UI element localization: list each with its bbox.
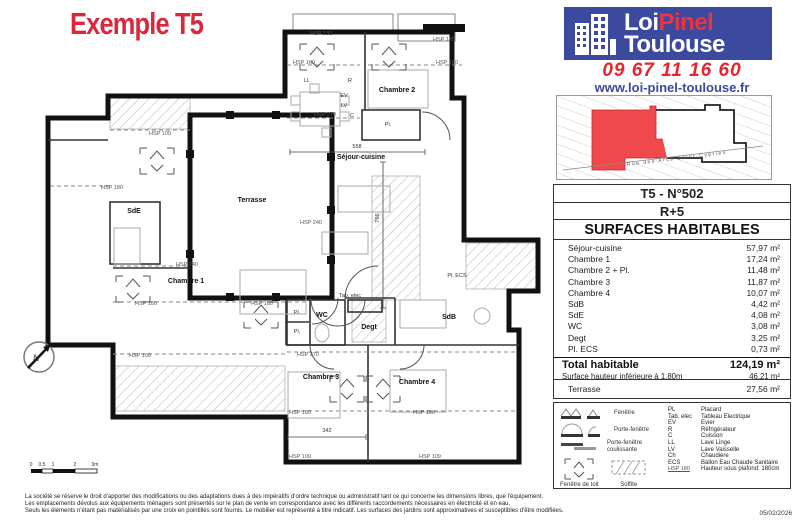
total-label: Total habitable [562, 359, 639, 371]
surface-row-value: 17,24 m² [746, 254, 780, 265]
legend-abbr: ECS [668, 460, 701, 467]
legend-roof-window-label: Fenêtre de toit [560, 482, 599, 488]
floor-plan: N TerrasseSéjour-cuisineChambre 1Chambre… [0, 0, 545, 500]
fixture-label: Pl. [294, 310, 301, 316]
room-label: Chambre 3 [303, 374, 339, 381]
surface-row: Chambre 2 + Pl.11,48 m² [554, 265, 790, 276]
terrace-value: 27,56 m² [746, 384, 780, 394]
surface-row-value: 0,73 m² [751, 344, 780, 355]
legend-abbr: LL [668, 440, 701, 447]
surface-row-value: 4,08 m² [751, 310, 780, 321]
roof-window-icon [564, 458, 594, 480]
fixture-label: R [348, 78, 352, 84]
legend-symbols: Fenêtre Porte-fenêtre Porte-fenêtre coul… [560, 407, 664, 486]
agency-logo: LoiPinel Toulouse [564, 7, 772, 60]
hsp-label: HSP 240 [176, 262, 198, 268]
legend-abbr-meaning: Ballon Eau Chaude Sanitaire [701, 460, 787, 467]
compass-north-label: N [33, 353, 40, 363]
french-door-icon [560, 423, 608, 437]
legend-abbr-meaning: Placard [701, 407, 787, 414]
room-label: Séjour-cuisine [337, 154, 385, 161]
fixture-label: Tab. elec [339, 293, 361, 299]
total-row: Total habitable 124,19 m² [554, 357, 790, 371]
surface-row-label: SdB [568, 299, 584, 310]
hsp-label: HSP 180 [135, 301, 157, 307]
terrace-walls [186, 111, 335, 301]
legend-abbr: R [668, 427, 701, 434]
surface-row-label: Chambre 2 + Pl. [568, 265, 630, 276]
room-label: Degt [361, 324, 377, 331]
surface-row-label: Pl. ECS [568, 344, 598, 355]
legend-abbreviations: PLPlacardTab. elecTableau ElectriqueEVEv… [668, 407, 787, 486]
room-label: WC [316, 312, 328, 319]
sliding-door-icon [560, 442, 601, 452]
legend-abbr-row: Tab. elecTableau Electrique [668, 414, 787, 421]
legend-abbr-row: LLLave Linge [668, 440, 787, 447]
footer-disclaimer: La société se réserve le droit d'apporte… [25, 494, 795, 515]
hsp-label: HSP 270 [314, 112, 336, 118]
room-label: Chambre 2 [379, 87, 415, 94]
surface-row-value: 3,25 m² [751, 333, 780, 344]
legend-abbr-row: LVLave Vaisselle [668, 447, 787, 454]
unit-info-box: T5 - N°502 R+5 [553, 184, 791, 221]
surface-row-value: 3,08 m² [751, 321, 780, 332]
legend-abbr-meaning: Hauteur sous plafond: 180cm [701, 466, 787, 473]
logo-word-toulouse: Toulouse [624, 34, 725, 56]
hsp-label: HSP 180 [101, 185, 123, 191]
legend-window-label: Fenêtre [614, 410, 635, 417]
scale-label: 0 [30, 462, 33, 468]
surface-row: WC3,08 m² [554, 321, 790, 332]
hsp-label: HSP 180 [289, 410, 311, 416]
legend-abbr-row: ChChaudière [668, 453, 787, 460]
legend: Fenêtre Porte-fenêtre Porte-fenêtre coul… [553, 402, 791, 489]
surface-row-value: 11,48 m² [747, 265, 780, 276]
hsp-label: HSP 109 [419, 454, 441, 460]
terrace-label: Terrasse [568, 384, 601, 394]
legend-abbr: PL [668, 407, 701, 414]
legend-abbr-row: CCuisson [668, 433, 787, 440]
scale-label: 0,5 [39, 462, 46, 468]
hsp-label: HSP 180 [413, 410, 435, 416]
legend-abbr-meaning: Chaudière [701, 453, 787, 460]
legend-abbr-row: HSP 180Hauteur sous plafond: 180cm [668, 466, 787, 473]
phone-number[interactable]: 09 67 11 16 60 [553, 60, 791, 82]
buildings-icon [574, 12, 616, 56]
compass-icon: N [24, 342, 54, 372]
fixture-label: Pl. ECS [447, 273, 467, 279]
unit-reference: T5 - N°502 [554, 185, 790, 203]
legend-abbr: Ch [668, 453, 701, 460]
hsp-label: HSP 270 [297, 352, 319, 358]
hsp-label: HSP 100 [149, 131, 171, 137]
fixture-label: Pl. [294, 329, 301, 335]
surface-row-label: Chambre 3 [568, 277, 610, 288]
legend-abbr-meaning: Réfrigérateur [701, 427, 787, 434]
hsp-label: HSP 100 [129, 353, 151, 359]
surface-row-value: 11,87 m² [747, 277, 780, 288]
surface-row: SdB4,42 m² [554, 299, 790, 310]
surface-row: Degt3,25 m² [554, 333, 790, 344]
footer-line: Les emplacements dévolus aux équipements… [25, 501, 795, 508]
hsp-label: HSP 160 [293, 60, 315, 66]
legend-abbr-row: PLPlacard [668, 407, 787, 414]
surfaces-rows: Séjour-cuisine57,97 m²Chambre 117,24 m²C… [554, 240, 790, 355]
footer-line: La société se réserve le droit d'apporte… [25, 494, 795, 501]
surface-row: Chambre 311,87 m² [554, 277, 790, 288]
site-plan: Rue des Arcs-Saint-Cyprien [556, 95, 772, 180]
legend-abbr-meaning: Cuisson [701, 433, 787, 440]
hsp-label: HSP 145 [433, 37, 455, 43]
surface-row-label: Chambre 4 [568, 288, 610, 299]
legend-abbr: HSP 180 [668, 466, 701, 473]
fixture-label: LV [341, 103, 348, 109]
room-label: SdE [127, 208, 141, 215]
fixture-label: EV [340, 93, 348, 99]
scale-label: 1 [52, 462, 55, 468]
window-icon [560, 407, 608, 420]
surface-row-label: WC [568, 321, 582, 332]
legend-abbr-meaning: Evier [701, 420, 787, 427]
legend-abbr-meaning: Lave Vaisselle [701, 447, 787, 454]
surface-row-label: Chambre 1 [568, 254, 610, 265]
legend-soffite-label: Soffite [611, 482, 647, 488]
dimension-label: 342 [322, 428, 331, 434]
legend-abbr-meaning: Lave Linge [701, 440, 787, 447]
surface-row: Pl. ECS0,73 m² [554, 344, 790, 355]
fixture-label: C [350, 113, 354, 119]
unit-floor: R+5 [554, 203, 790, 220]
surfaces-header: SURFACES HABITABLES [554, 220, 790, 240]
dimension-label: 558 [352, 144, 361, 150]
fixture-label: LL [304, 78, 310, 84]
surface-row: SdE4,08 m² [554, 310, 790, 321]
surface-row-value: 4,42 m² [751, 299, 780, 310]
scale-label: 3m [92, 462, 99, 468]
hsp-label: HSP 109 [289, 454, 311, 460]
terrace-row: Terrasse 27,56 m² [553, 379, 791, 399]
surface-row-value: 10,07 m² [746, 288, 780, 299]
fixture-label: Pl. [385, 122, 392, 128]
hsp-label: HSP 132 [310, 31, 332, 37]
room-label: Chambre 4 [399, 379, 435, 386]
soffite-icon [611, 458, 647, 480]
scale-label: 2 [74, 462, 77, 468]
surface-row-label: Degt [568, 333, 586, 344]
page-title: Exemple T5 [70, 6, 203, 42]
legend-abbr: LV [668, 447, 701, 454]
legend-french-door-label: Porte-fenêtre [614, 427, 649, 434]
legend-abbr: EV [668, 420, 701, 427]
surface-row: Séjour-cuisine57,97 m² [554, 243, 790, 254]
surface-row: Chambre 410,07 m² [554, 288, 790, 299]
hsp-label: HSP 180 [251, 301, 273, 307]
legend-abbr-meaning: Tableau Electrique [701, 414, 787, 421]
surfaces-table: SURFACES HABITABLES Séjour-cuisine57,97 … [553, 219, 791, 385]
room-label: Chambre 1 [168, 278, 204, 285]
surface-row: Chambre 117,24 m² [554, 254, 790, 265]
legend-abbr-row: ECSBallon Eau Chaude Sanitaire [668, 460, 787, 467]
hsp-label: HSP 160 [436, 60, 458, 66]
legend-abbr: Tab. elec [668, 414, 701, 421]
website-link[interactable]: www.loi-pinel-toulouse.fr [553, 80, 791, 95]
legend-sliding-door-label: Porte-fenêtre coulissante [607, 440, 664, 453]
legend-abbr-row: EVEvier [668, 420, 787, 427]
legend-abbr: C [668, 433, 701, 440]
surface-row-label: SdE [568, 310, 584, 321]
surface-row-label: Séjour-cuisine [568, 243, 622, 254]
surface-row-value: 57,97 m² [746, 243, 780, 254]
room-label: SdB [442, 314, 456, 321]
footer-line: Seuls les éléments n'étant pas matériali… [25, 508, 795, 515]
room-label: Terrasse [238, 197, 267, 204]
hsp-label: HSP 240 [300, 220, 322, 226]
total-value: 124,19 m² [730, 359, 780, 371]
dimension-label: 766 [375, 213, 381, 222]
scale-bar [31, 469, 97, 473]
legend-abbr-row: RRéfrigérateur [668, 427, 787, 434]
